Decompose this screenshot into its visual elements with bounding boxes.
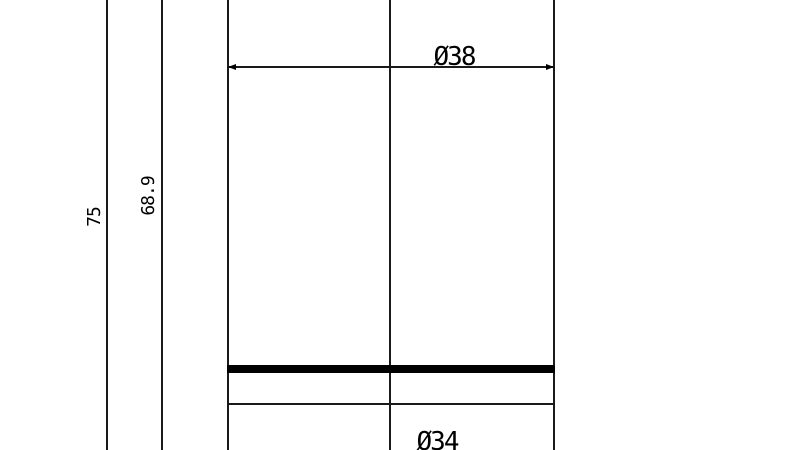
length-75-label: 75 (86, 207, 104, 227)
thick-edge-line (227, 365, 555, 373)
lower-edge-line (227, 403, 555, 405)
length-68-9-label: 68.9 (140, 176, 158, 215)
dim-line-75 (106, 0, 108, 450)
dia38-label: Ø38 (414, 44, 494, 70)
dia34-label: Ø34 (397, 429, 477, 450)
engineering-drawing-canvas: Ø38 Ø34 75 68.9 (0, 0, 800, 450)
dia38-arrow-right-icon (546, 64, 554, 70)
dim-line-68-9 (161, 0, 163, 450)
dia38-dimension-line (228, 66, 554, 68)
dia38-arrow-left-icon (228, 64, 236, 70)
